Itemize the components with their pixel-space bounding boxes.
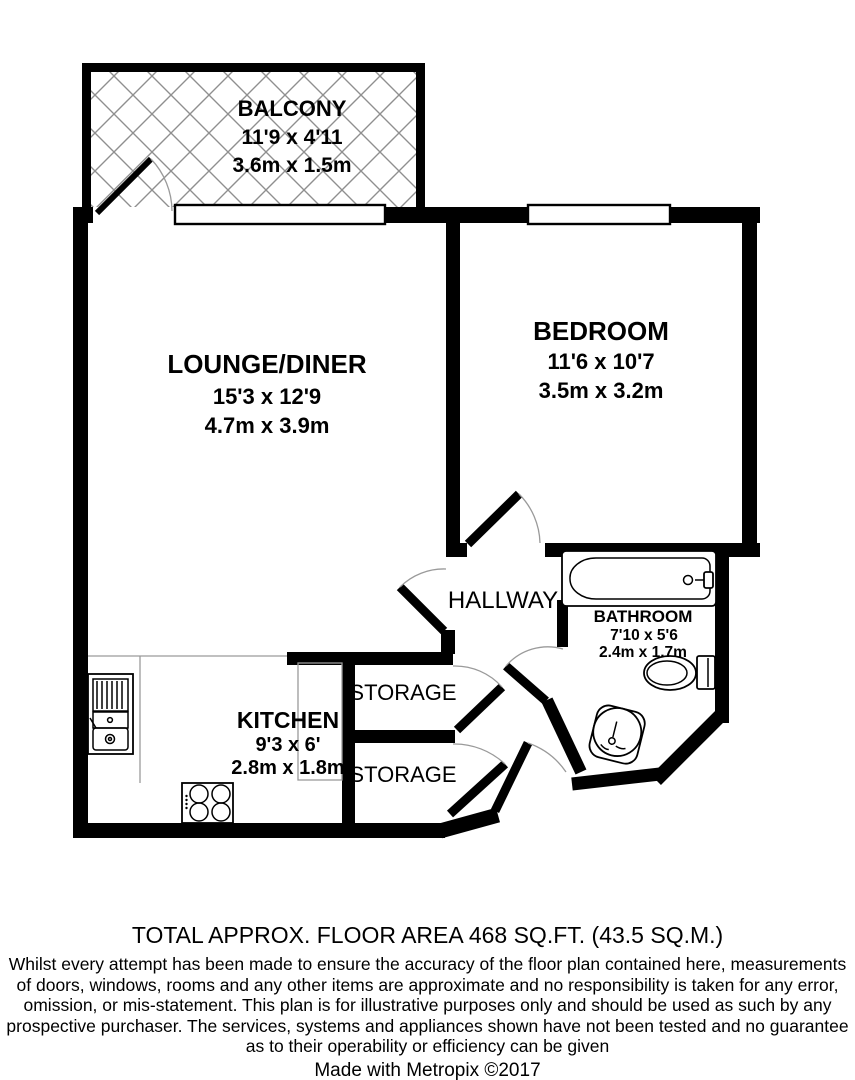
storage-bottom-label: STORAGE xyxy=(349,762,456,787)
footer: TOTAL APPROX. FLOOR AREA 468 SQ.FT. (43.… xyxy=(0,922,855,1080)
lounge-metric: 4.7m x 3.9m xyxy=(205,413,330,438)
bedroom-imperial: 11'6 x 10'7 xyxy=(547,349,654,374)
floor-plan: BALCONY 11'9 x 4'11 3.6m x 1.5m LOUNGE/D… xyxy=(0,0,855,920)
disclaimer-line: as to their operability or efficiency ca… xyxy=(0,1036,855,1057)
kitchen-metric: 2.8m x 1.8m xyxy=(231,757,344,779)
floorplan-page: BALCONY 11'9 x 4'11 3.6m x 1.5m LOUNGE/D… xyxy=(0,0,855,1080)
toilet-icon xyxy=(644,656,715,690)
storage-top-door xyxy=(453,666,502,730)
left-wall xyxy=(73,207,88,838)
entry-closing-wall xyxy=(572,774,660,784)
balcony-wall-left xyxy=(82,63,91,213)
bathtub-icon xyxy=(562,551,716,606)
top-wall-mid xyxy=(385,207,528,223)
bathroom-metric: 2.4m x 1.7m xyxy=(599,644,687,661)
total-area-text: TOTAL APPROX. FLOOR AREA 468 SQ.FT. (43.… xyxy=(0,922,855,949)
bedroom-door xyxy=(468,494,540,544)
hob-icon xyxy=(182,783,233,823)
entrance-door xyxy=(495,743,566,811)
disclaimer-line: Whilst every attempt has been made to en… xyxy=(0,954,855,975)
hallway-label: HALLWAY xyxy=(448,587,558,614)
hallway-stub xyxy=(441,630,455,654)
sink-icon xyxy=(587,703,647,766)
lounge-bedroom-divider xyxy=(446,222,460,547)
kitchen-label: KITCHEN xyxy=(237,707,339,733)
bedroom-right-wall xyxy=(742,207,757,557)
disclaimer-line: of doors, windows, rooms and any other i… xyxy=(0,975,855,996)
balcony-wall-top xyxy=(82,63,425,72)
balcony-label: BALCONY xyxy=(238,96,347,121)
balcony-wall-right xyxy=(416,63,425,213)
bedroom-door-stub xyxy=(446,543,467,557)
bathroom-left-stub xyxy=(557,600,568,647)
lounge-window xyxy=(175,205,385,224)
bottom-wall xyxy=(73,823,445,838)
bathroom-label: BATHROOM xyxy=(594,607,693,626)
lounge-door xyxy=(400,569,446,631)
storage-top-label: STORAGE xyxy=(349,680,456,705)
balcony-imperial: 11'9 x 4'11 xyxy=(241,126,342,149)
lounge-label: LOUNGE/DINER xyxy=(167,349,367,379)
bathroom-sw-diagonal-wall xyxy=(547,700,581,772)
balcony-metric: 3.6m x 1.5m xyxy=(232,154,351,177)
kitchen-sink-icon xyxy=(88,674,133,754)
disclaimer-line: omission, or mis-statement. This plan is… xyxy=(0,995,855,1016)
lounge-imperial: 15'3 x 12'9 xyxy=(213,384,321,409)
disclaimer-line: prospective purchaser. The services, sys… xyxy=(0,1016,855,1037)
bedroom-label: BEDROOM xyxy=(533,316,669,346)
bedroom-window xyxy=(528,205,670,224)
bathroom-se-diagonal-wall xyxy=(656,714,722,780)
bedroom-metric: 3.5m x 3.2m xyxy=(539,378,664,403)
storage-divider xyxy=(348,730,455,743)
bathroom-door xyxy=(506,647,563,701)
bathroom-imperial: 7'10 x 5'6 xyxy=(610,627,678,644)
kitchen-imperial: 9'3 x 6' xyxy=(255,734,320,756)
bathroom-right-wall xyxy=(715,552,729,723)
metropix-credit: Made with Metropix ©2017 xyxy=(0,1060,855,1080)
bottom-jog-wall xyxy=(440,815,498,831)
